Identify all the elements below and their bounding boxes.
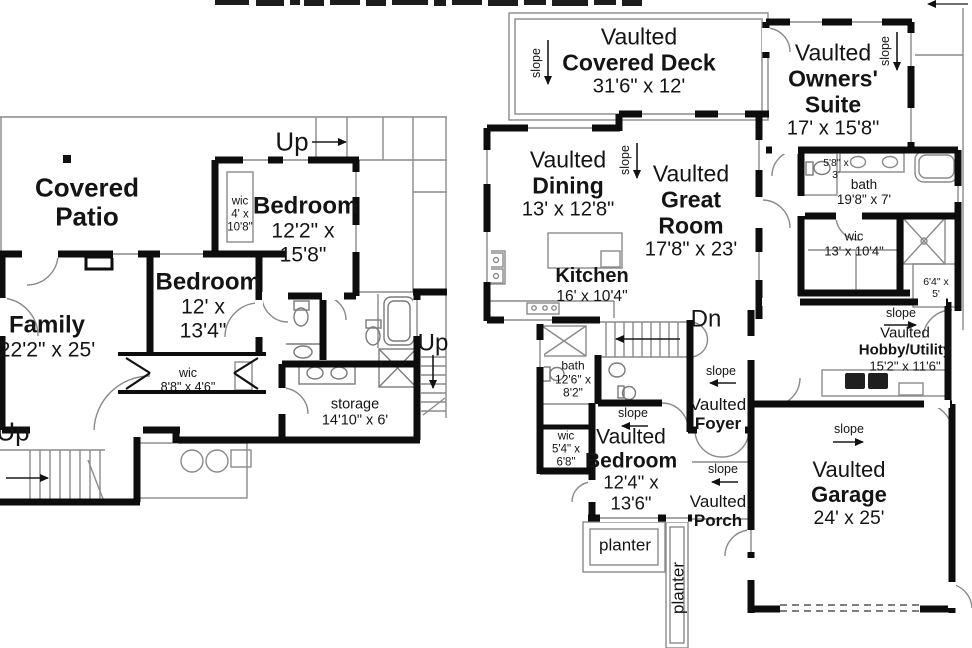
room-label-great-room: Vaulted Great Room 17'8" x 23' <box>636 161 746 262</box>
room-label-covered-deck: Vaulted Covered Deck 31'6" x 12' <box>554 24 724 99</box>
fireplace-box <box>86 257 112 269</box>
room-label-hobby-utility: Vaulted Hobby/Utility 15'2" x 11'6" <box>858 326 953 375</box>
stair-label-dn: Dn <box>691 305 722 332</box>
slope-label-garage: slope <box>834 422 864 436</box>
slope-label-dining: slope <box>618 145 632 175</box>
room-label-covered-patio: Covered Patio <box>27 174 147 233</box>
room-label-wic-4: wic 5'4" x 6'8" <box>545 431 587 470</box>
room-label-bath-2: bath 12'6" x 8'2" <box>547 360 599 401</box>
slope-label-bedroom: slope <box>618 406 648 420</box>
stair-label-up-bottom: Up <box>0 417 30 446</box>
floor-plan-canvas: Covered Patio Bedroom 12'2" x 15'8" Bedr… <box>0 0 972 648</box>
room-label-storage: storage 14'10" x 6' <box>308 397 403 430</box>
room-label-family: Family 22'2" x 25' <box>0 312 112 363</box>
slope-label-porch: slope <box>708 462 738 476</box>
room-label-owners-suite: Vaulted Owners' Suite 17' x 15'8" <box>773 40 893 141</box>
slope-label-foyer: slope <box>706 364 736 378</box>
slope-label-deck: slope <box>529 48 543 78</box>
planter-label-vertical: planter <box>668 562 687 614</box>
room-label-dining: Vaulted Dining 13' x 12'8" <box>513 147 623 222</box>
patio-post <box>63 155 71 163</box>
room-label-owners-bath: bath 19'8" x 7' <box>824 177 904 208</box>
room-label-foyer: Vaulted Foyer <box>683 395 753 433</box>
hobby-appliances <box>845 373 888 389</box>
stair-label-up-top: Up <box>275 127 308 156</box>
cropped-title-fragments <box>215 0 642 6</box>
room-label-bedroom-upper: Bedroom 12'2" x 15'8" <box>253 193 353 268</box>
room-label-garage: Vaulted Garage 24' x 25' <box>794 458 904 530</box>
stair-label-up-right: Up <box>418 329 449 356</box>
closet-label-small-closet: 6'4" x 5' <box>920 277 952 301</box>
room-label-kitchen: Kitchen 16' x 10'4" <box>537 265 647 305</box>
room-label-wic-3: wic 13' x 10'4" <box>814 229 894 258</box>
left-plan-fixtures <box>286 297 416 387</box>
slope-label-owners: slope <box>878 36 892 66</box>
room-label-bedroom-lower: Bedroom 12' x 13'4" <box>156 269 251 344</box>
room-label-porch: Vaulted Porch <box>683 492 753 530</box>
slope-label-hobby: slope <box>886 306 916 320</box>
garage-door-dashed <box>780 605 920 611</box>
room-label-bedroom-3: Vaulted Bedroom 12'4" x 13'6" <box>585 425 677 514</box>
room-label-wic-2: wic 8'8" x 4'6" <box>143 366 233 394</box>
planter-label-horizontal: planter <box>599 535 651 554</box>
room-label-wic-1: wic 4' x 10'8" <box>220 196 260 235</box>
